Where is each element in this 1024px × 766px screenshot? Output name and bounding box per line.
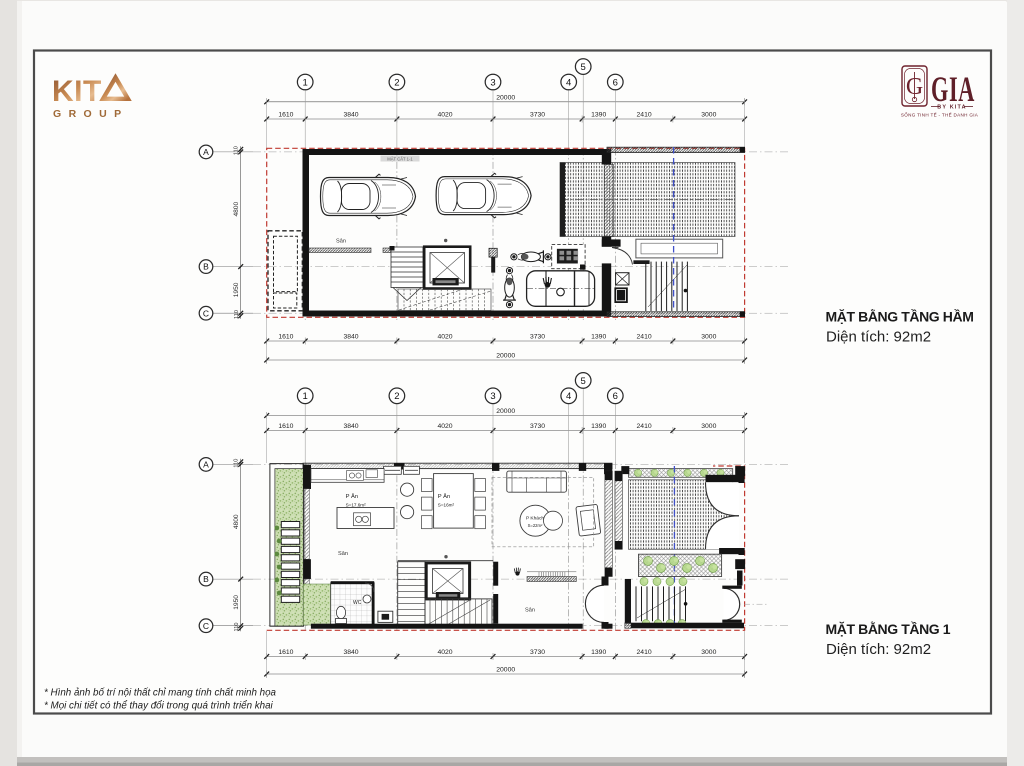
svg-text:KIT: KIT	[52, 75, 102, 108]
svg-text:1610: 1610	[278, 112, 293, 119]
svg-text:1950: 1950	[233, 595, 240, 610]
svg-text:2: 2	[394, 77, 399, 88]
svg-text:Sân: Sân	[336, 239, 346, 245]
svg-text:4800: 4800	[233, 202, 240, 217]
svg-text:20000: 20000	[496, 353, 515, 360]
svg-text:MẶT BẰNG TẦNG HẦM: MẶT BẰNG TẦNG HẦM	[826, 308, 974, 325]
svg-text:Diện tích: 92m2: Diện tích: 92m2	[826, 329, 931, 346]
svg-text:1: 1	[303, 391, 308, 402]
svg-text:BY KITA: BY KITA	[937, 105, 966, 111]
svg-text:* Hình ảnh bố trí nội thất chỉ: * Hình ảnh bố trí nội thất chỉ mang tính…	[44, 688, 277, 699]
svg-text:1950: 1950	[233, 282, 240, 297]
svg-text:3000: 3000	[701, 423, 716, 430]
svg-text:GIA: GIA	[931, 70, 975, 110]
svg-text:S=16m²: S=16m²	[438, 503, 455, 508]
svg-text:4: 4	[566, 77, 571, 88]
svg-text:2410: 2410	[637, 649, 652, 656]
svg-text:SỐNG TINH TẾ - THẾ DANH GIA: SỐNG TINH TẾ - THẾ DANH GIA	[901, 112, 979, 118]
svg-text:MẶT CẮT 1-1: MẶT CẮT 1-1	[387, 156, 413, 161]
svg-text:S=17.6m²: S=17.6m²	[346, 503, 367, 508]
svg-text:* Mọi chi tiết có thể thay đổi: * Mọi chi tiết có thể thay đổi trong quá…	[44, 701, 274, 712]
svg-text:3730: 3730	[530, 334, 545, 341]
svg-text:3000: 3000	[701, 112, 716, 119]
svg-text:4800: 4800	[233, 514, 240, 529]
svg-text:2: 2	[394, 391, 399, 402]
svg-text:1390: 1390	[591, 423, 606, 430]
svg-text:20000: 20000	[496, 408, 515, 415]
svg-text:3: 3	[490, 77, 495, 88]
svg-text:110: 110	[233, 146, 239, 155]
svg-text:4020: 4020	[437, 423, 452, 430]
svg-text:110: 110	[234, 623, 240, 632]
svg-text:3840: 3840	[343, 649, 358, 656]
svg-text:1390: 1390	[591, 334, 606, 341]
svg-text:P Ăn: P Ăn	[346, 493, 358, 500]
svg-text:6: 6	[613, 391, 618, 402]
svg-text:3730: 3730	[530, 112, 545, 119]
svg-text:A: A	[203, 147, 209, 157]
svg-text:1610: 1610	[278, 649, 293, 656]
svg-text:20000: 20000	[496, 667, 515, 674]
svg-text:4020: 4020	[437, 112, 452, 119]
svg-text:4: 4	[566, 391, 571, 402]
svg-text:3840: 3840	[343, 423, 358, 430]
svg-text:3840: 3840	[343, 334, 358, 341]
svg-text:C: C	[203, 308, 209, 318]
svg-text:4020: 4020	[437, 649, 452, 656]
svg-text:3: 3	[490, 391, 495, 402]
svg-text:2410: 2410	[637, 112, 652, 119]
svg-text:4020: 4020	[437, 334, 452, 341]
svg-text:5: 5	[581, 62, 586, 73]
svg-text:GROUP: GROUP	[53, 108, 129, 120]
svg-text:Diện tích: 92m2: Diện tích: 92m2	[826, 641, 931, 658]
svg-text:P Khách: P Khách	[526, 516, 544, 522]
svg-text:3840: 3840	[343, 112, 358, 119]
svg-text:C: C	[203, 621, 209, 631]
svg-text:B: B	[203, 262, 209, 272]
svg-text:20000: 20000	[496, 94, 515, 101]
svg-text:2410: 2410	[637, 423, 652, 430]
svg-text:P Ăn: P Ăn	[438, 493, 450, 500]
svg-text:1390: 1390	[591, 649, 606, 656]
svg-text:1610: 1610	[278, 334, 293, 341]
svg-text:MẶT BẰNG TẦNG 1: MẶT BẰNG TẦNG 1	[826, 620, 951, 637]
svg-text:3730: 3730	[530, 649, 545, 656]
svg-text:1390: 1390	[591, 112, 606, 119]
svg-text:110: 110	[234, 310, 240, 319]
svg-text:A: A	[203, 460, 209, 470]
svg-text:110: 110	[233, 459, 239, 468]
svg-text:3000: 3000	[701, 649, 716, 656]
svg-text:WC: WC	[353, 600, 362, 606]
svg-text:B: B	[203, 574, 209, 584]
svg-text:Sân: Sân	[525, 608, 535, 614]
svg-text:1: 1	[303, 77, 308, 88]
svg-text:3000: 3000	[701, 334, 716, 341]
svg-text:6: 6	[613, 77, 618, 88]
svg-text:2410: 2410	[637, 334, 652, 341]
svg-text:Sân: Sân	[338, 551, 348, 557]
svg-text:S=22m²: S=22m²	[528, 523, 543, 528]
svg-text:5: 5	[581, 376, 586, 387]
svg-text:1610: 1610	[278, 423, 293, 430]
svg-text:3730: 3730	[530, 423, 545, 430]
